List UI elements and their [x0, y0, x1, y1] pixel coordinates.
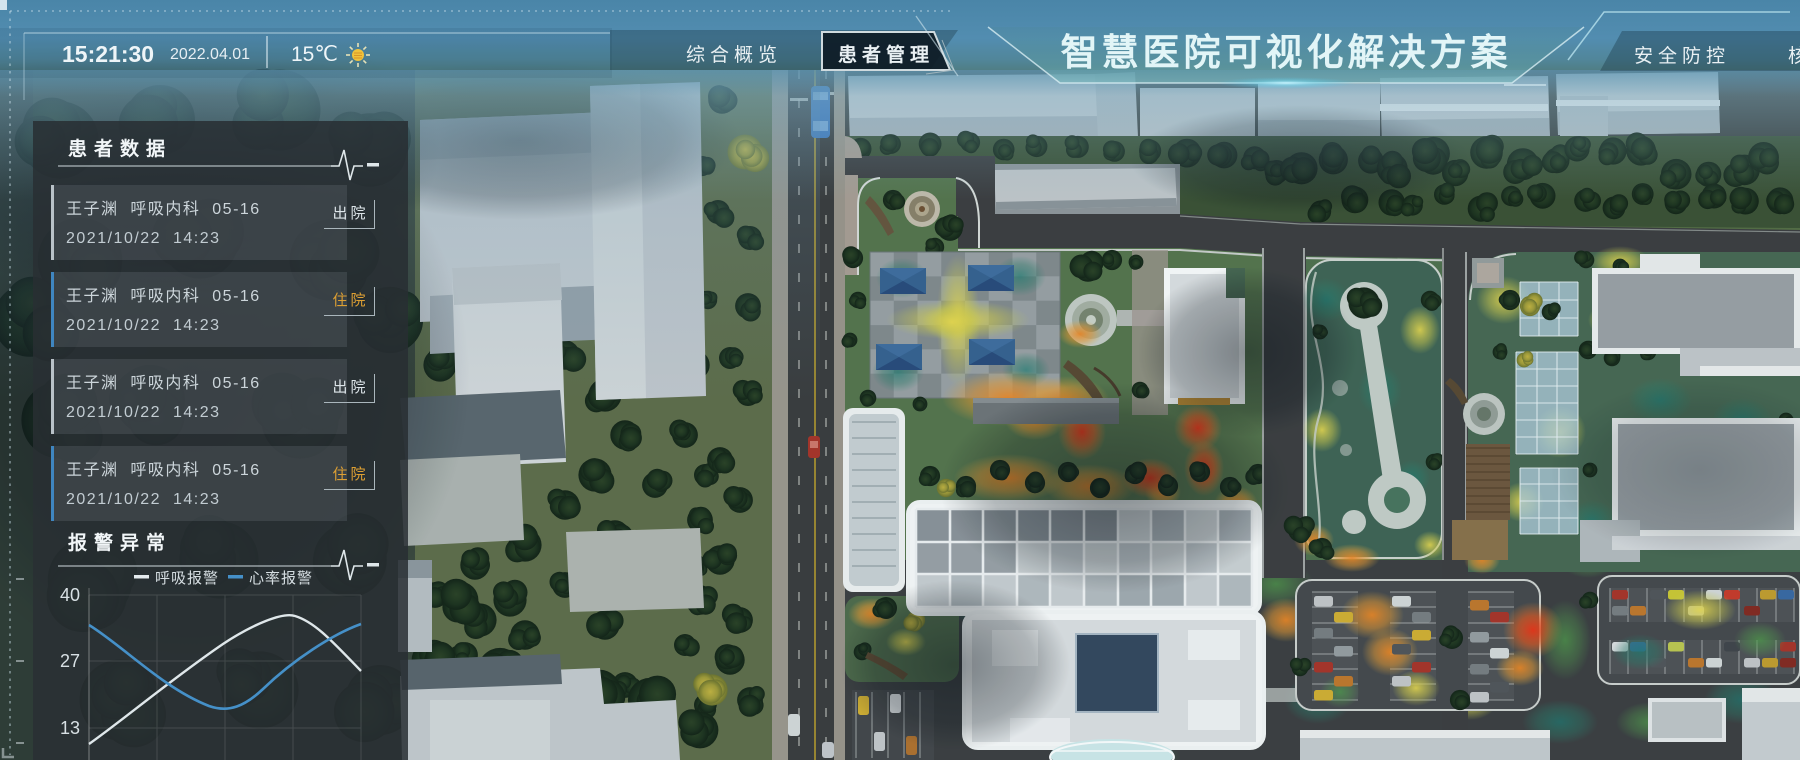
svg-text:呼吸报警: 呼吸报警 [155, 570, 219, 587]
svg-text:心率报警: 心率报警 [249, 570, 313, 587]
svg-text:13: 13 [60, 718, 80, 738]
svg-text:40: 40 [60, 585, 80, 605]
svg-text:27: 27 [60, 651, 80, 671]
